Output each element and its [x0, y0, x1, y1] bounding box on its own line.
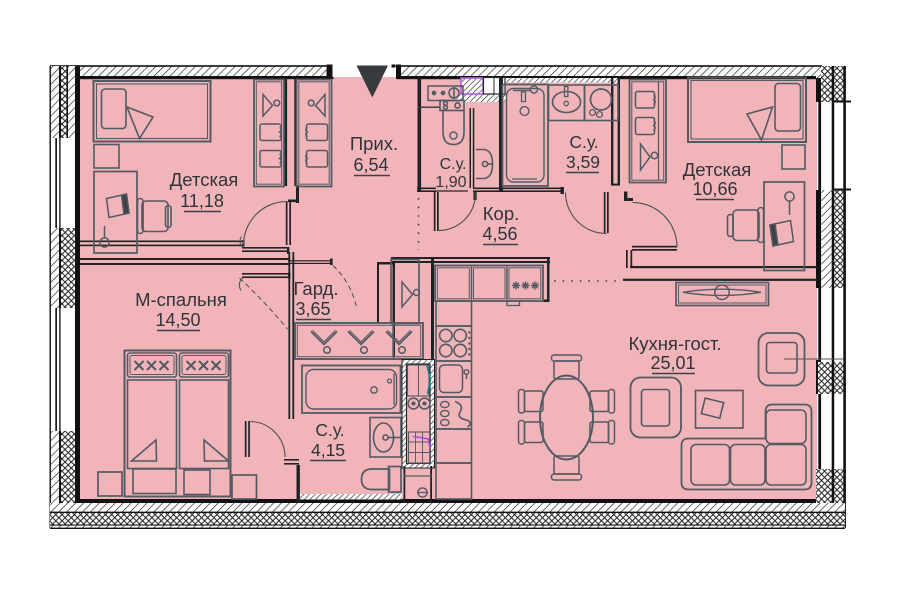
- svg-text:Кор.: Кор.: [483, 203, 520, 224]
- svg-text:3,59: 3,59: [566, 152, 600, 172]
- svg-text:4,56: 4,56: [482, 224, 517, 244]
- svg-text:С.у.: С.у.: [315, 420, 344, 440]
- svg-text:6,54: 6,54: [353, 155, 388, 175]
- svg-text:25,01: 25,01: [650, 353, 695, 373]
- svg-text:11,18: 11,18: [180, 191, 224, 211]
- svg-text:Прих.: Прих.: [350, 133, 398, 154]
- svg-text:1,90: 1,90: [435, 174, 466, 191]
- svg-text:14,50: 14,50: [155, 310, 200, 330]
- svg-text:М-спальня: М-спальня: [135, 289, 227, 310]
- svg-text:Детская: Детская: [170, 169, 239, 190]
- svg-text:С.у.: С.у.: [569, 132, 598, 152]
- svg-text:Детская: Детская: [683, 159, 752, 180]
- svg-text:10,66: 10,66: [692, 179, 737, 199]
- svg-text:4,15: 4,15: [311, 440, 345, 460]
- svg-text:3,65: 3,65: [295, 299, 330, 319]
- svg-text:Гард.: Гард.: [293, 278, 338, 299]
- svg-text:Кухня-гост.: Кухня-гост.: [628, 333, 721, 354]
- svg-text:С.у.: С.у.: [440, 156, 467, 173]
